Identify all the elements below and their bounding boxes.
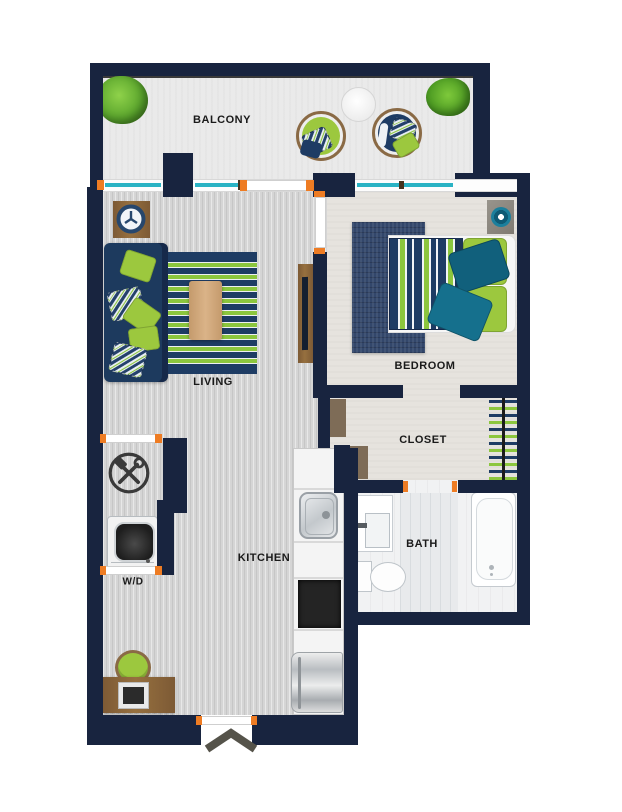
door-jamb <box>403 481 408 492</box>
closet-dresser <box>329 399 346 437</box>
floor-plan: BALCONY LIVING BEDROOM CLOSET KITCHEN BA… <box>0 0 622 812</box>
label-closet: CLOSET <box>399 434 447 446</box>
wall-closet-bath-left <box>344 480 403 493</box>
coffee-table <box>189 281 222 340</box>
sofa-pillow <box>119 249 157 284</box>
wall-bedroom-closet-left <box>320 385 403 398</box>
refrigerator <box>291 652 343 713</box>
door-jamb <box>452 481 457 492</box>
window-living-right <box>195 183 239 187</box>
kitchen-sink <box>299 492 338 539</box>
vanity-sink <box>357 495 393 552</box>
laptop-icon <box>118 682 149 709</box>
door-jamb <box>155 566 162 575</box>
wall-closet-step <box>318 398 330 448</box>
counter-divider <box>294 541 343 543</box>
washer-knob-icon <box>146 559 150 563</box>
label-bath: BATH <box>406 538 438 550</box>
wall-utility-step <box>157 500 187 513</box>
wall-left <box>87 187 103 745</box>
counter-divider <box>294 629 343 631</box>
door-jamb <box>196 716 202 725</box>
hanging-chair-green <box>296 111 346 161</box>
bedroom-door <box>315 197 326 248</box>
tub-basin <box>476 498 513 580</box>
potted-plant-icon <box>98 76 148 124</box>
wall-clock-icon <box>116 204 146 234</box>
utility-door <box>105 434 156 443</box>
bathtub <box>471 492 516 587</box>
door-jamb <box>314 191 325 197</box>
bath-door-floor <box>403 480 458 493</box>
nightstand <box>487 200 514 234</box>
balcony-sliding-door <box>246 180 307 191</box>
tv-console <box>298 264 313 363</box>
label-bedroom: BEDROOM <box>395 360 456 372</box>
wall-balcony-top <box>90 63 490 76</box>
fridge-handle <box>298 657 301 709</box>
door-jamb <box>97 180 104 190</box>
hanging-chair-navy <box>372 108 422 158</box>
wall-bedroom-living <box>313 252 327 398</box>
laptop-screen <box>123 687 144 704</box>
wall-balcony-right <box>473 63 490 175</box>
shower-floor <box>400 493 458 612</box>
entry-door <box>201 716 252 725</box>
wall-band-pillar-a <box>163 153 193 197</box>
decor-bowl-icon <box>491 207 511 227</box>
door-jamb <box>306 180 314 191</box>
door-jamb <box>314 248 325 254</box>
door-jamb <box>240 180 247 191</box>
wall-bath-bottom <box>344 612 530 625</box>
window-mullion <box>399 181 404 189</box>
wall-closet-bath-right <box>458 480 517 493</box>
sink-basin <box>365 513 390 548</box>
toilet-bowl <box>370 562 406 592</box>
wall-bottom-left <box>87 715 201 745</box>
counter-divider <box>294 577 343 579</box>
wall-bottom-right <box>252 715 358 745</box>
tub-drain-icon <box>489 565 494 570</box>
tv-icon <box>302 277 308 350</box>
clothes-rack-rod <box>502 396 505 482</box>
door-jamb <box>251 716 257 725</box>
faucet-knob-icon <box>322 511 330 519</box>
entry-arrow-icon <box>202 728 260 753</box>
window-living-left <box>105 183 161 187</box>
laundry-door <box>105 566 156 575</box>
tools-icon <box>107 451 151 495</box>
faucet-icon <box>358 523 367 528</box>
stove-cooktop <box>298 580 341 628</box>
label-kitchen: KITCHEN <box>238 552 290 564</box>
door-jamb <box>100 566 106 575</box>
balcony-table <box>341 87 376 122</box>
washer-dryer <box>107 516 158 571</box>
tub-drain-icon <box>490 573 493 576</box>
door-jamb <box>155 434 162 443</box>
label-laundry: W/D <box>123 577 144 588</box>
door-jamb <box>100 434 106 443</box>
wall-balcony-left <box>90 63 103 190</box>
label-living: LIVING <box>193 376 233 388</box>
balcony-rail-line-top <box>100 76 473 78</box>
washer-drum-icon <box>114 522 155 562</box>
wall-right <box>517 195 530 625</box>
potted-grass-icon <box>426 78 470 116</box>
wall-bedroom-closet-right <box>460 385 517 398</box>
sofa <box>104 243 168 382</box>
label-balcony: BALCONY <box>193 114 251 126</box>
window-bedroom <box>357 183 453 187</box>
